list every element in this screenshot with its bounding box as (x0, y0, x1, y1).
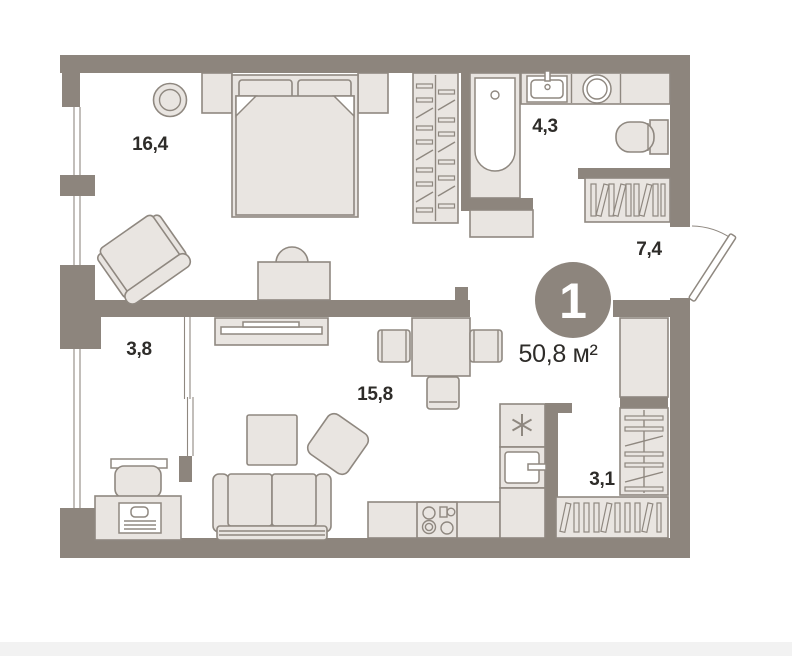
room-area-living-kitchen: 15,8 (357, 384, 393, 405)
floorplan-viewer: 16,4 4,3 7,4 3,8 15,8 3,1 1 50,8 м² (0, 0, 792, 656)
storage-rack (556, 497, 668, 538)
pouf (305, 411, 372, 478)
room-area-bathroom: 4,3 (532, 116, 558, 137)
rooms-badge: 1 (535, 262, 611, 338)
room-area-storage: 3,1 (589, 469, 615, 490)
bathroom-step (470, 210, 533, 237)
room-area-balcony: 3,8 (126, 339, 152, 360)
kitchen-tall-unit (500, 404, 546, 538)
nightstand-left (202, 73, 232, 113)
balcony-glass-partition (185, 317, 194, 456)
bathtub (470, 73, 520, 198)
tv-stand (215, 318, 328, 345)
coffee-table (247, 415, 297, 465)
washing-machine (583, 75, 611, 103)
hallway-shoe-rack (585, 178, 670, 222)
total-area-label: 50,8 м² (518, 340, 597, 368)
dining-chair-right (470, 330, 502, 362)
floorplan-image[interactable]: 16,4 4,3 7,4 3,8 15,8 3,1 1 50,8 м² (0, 0, 792, 656)
laptop-icon (119, 503, 161, 533)
balcony-desk (95, 459, 181, 540)
toilet (616, 120, 668, 154)
storage-shelving (620, 408, 668, 495)
nightstand-right (358, 73, 388, 113)
dining-table (412, 318, 470, 376)
window-left-top (74, 107, 80, 175)
armchair (94, 210, 194, 307)
bedroom-desk (258, 247, 330, 300)
window-left-middle (74, 196, 80, 265)
room-area-hallway: 7,4 (636, 239, 662, 260)
rooms-badge-number: 1 (559, 273, 587, 329)
dining-chair-left (378, 330, 410, 362)
window-balcony (74, 349, 80, 508)
dining-chair-bottom (427, 377, 459, 409)
bedroom-wardrobe (413, 73, 458, 223)
sofa (213, 474, 331, 540)
bedroom-mirror (154, 84, 187, 117)
sink (527, 71, 567, 102)
footer-strip (0, 642, 792, 656)
fridge (620, 318, 668, 397)
entrance-door (689, 226, 737, 302)
bed (232, 75, 358, 217)
room-area-bedroom: 16,4 (132, 134, 169, 155)
